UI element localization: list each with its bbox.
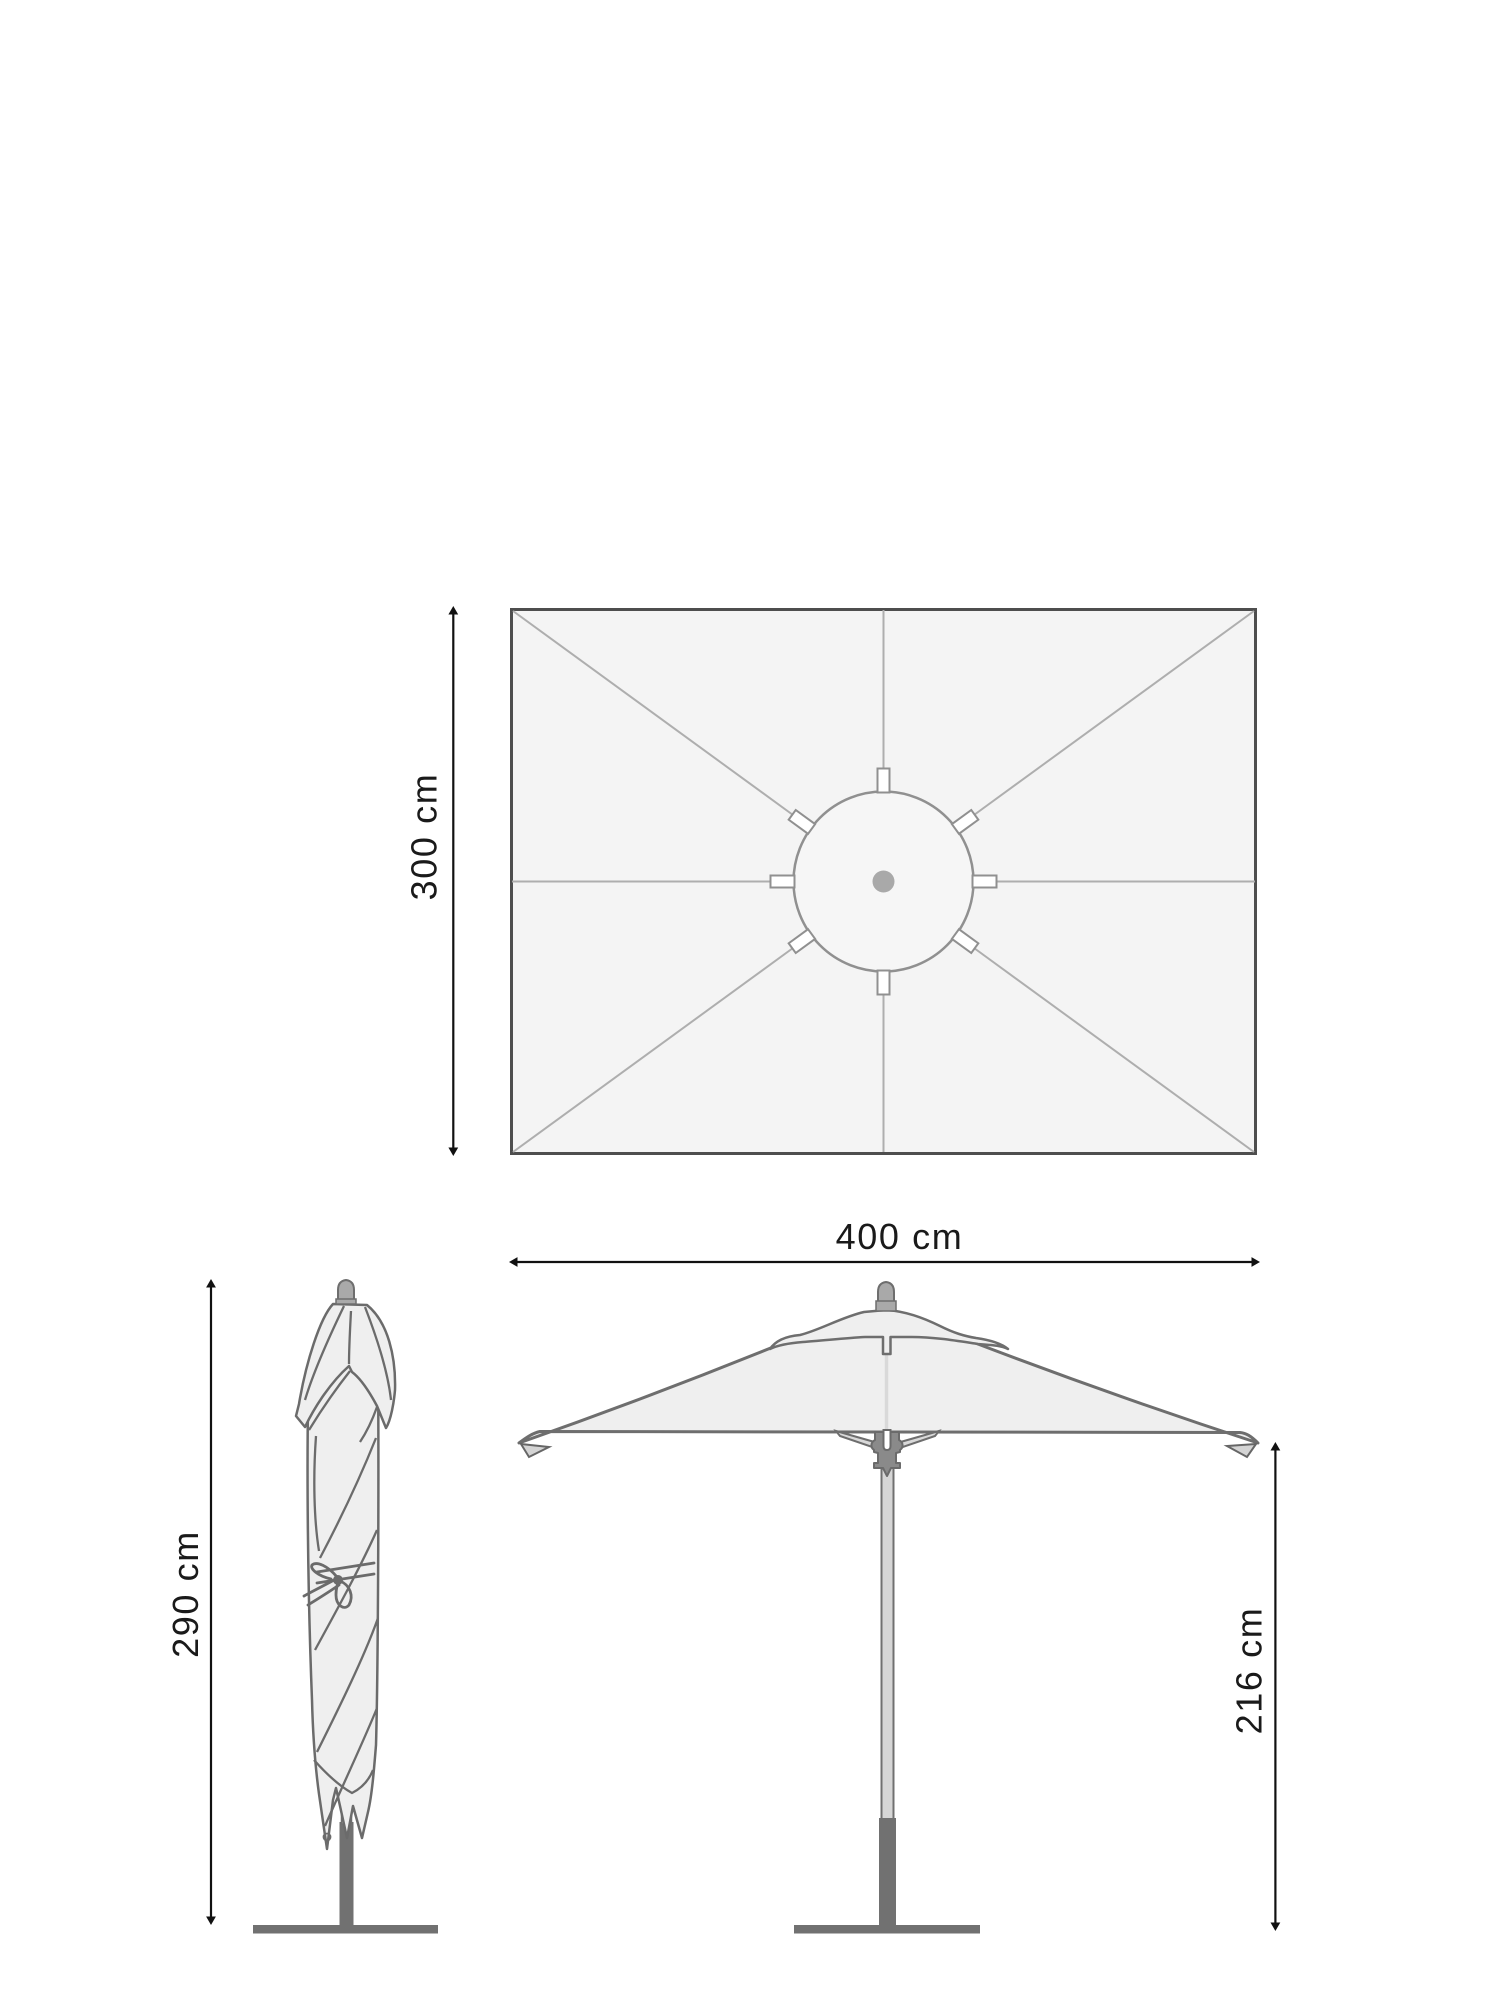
svg-text:400 cm: 400 cm [836,1216,964,1257]
svg-text:290 cm: 290 cm [165,1530,206,1658]
svg-text:216 cm: 216 cm [1229,1607,1270,1735]
svg-text:300 cm: 300 cm [404,773,445,901]
